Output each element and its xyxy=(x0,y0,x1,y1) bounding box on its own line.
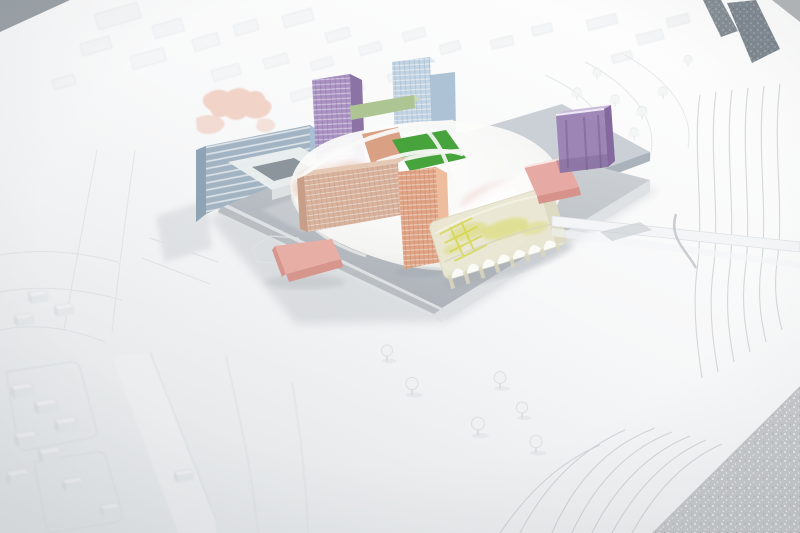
model-photo-canvas xyxy=(0,0,800,533)
model-photo xyxy=(0,0,800,533)
corner-tint-overlay xyxy=(0,0,800,533)
